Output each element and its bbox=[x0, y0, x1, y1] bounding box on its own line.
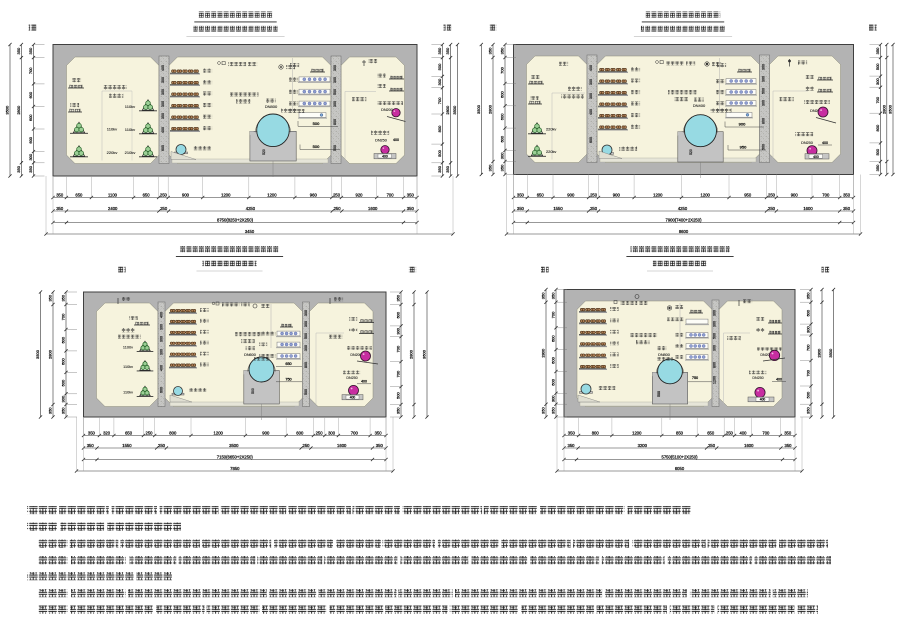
svg-text:350: 350 bbox=[488, 47, 493, 54]
svg-text:900: 900 bbox=[262, 430, 270, 435]
svg-text:600: 600 bbox=[806, 309, 811, 316]
svg-text:400: 400 bbox=[822, 141, 828, 145]
svg-text:350: 350 bbox=[437, 165, 442, 172]
svg-text:500: 500 bbox=[333, 89, 337, 95]
svg-text:350: 350 bbox=[517, 206, 525, 211]
svg-text:350: 350 bbox=[445, 47, 450, 54]
svg-text:350: 350 bbox=[806, 406, 811, 413]
svg-text:600: 600 bbox=[551, 335, 556, 342]
svg-text:500: 500 bbox=[762, 88, 766, 94]
svg-text:850: 850 bbox=[676, 430, 684, 435]
svg-text:7900(7400+2X250): 7900(7400+2X250) bbox=[666, 217, 703, 222]
svg-text:350: 350 bbox=[843, 206, 851, 211]
svg-text:700: 700 bbox=[762, 430, 770, 435]
svg-text:350: 350 bbox=[843, 192, 851, 197]
svg-text:350: 350 bbox=[28, 165, 33, 172]
svg-text:700: 700 bbox=[437, 97, 442, 104]
svg-text:700: 700 bbox=[500, 66, 505, 73]
svg-text:500: 500 bbox=[875, 148, 880, 155]
svg-text:300: 300 bbox=[333, 65, 337, 71]
svg-text:650: 650 bbox=[285, 362, 291, 366]
svg-text:800: 800 bbox=[592, 430, 600, 435]
svg-text:1550: 1550 bbox=[553, 206, 563, 211]
svg-text:400: 400 bbox=[160, 365, 164, 371]
svg-text:DN250: DN250 bbox=[346, 376, 357, 380]
svg-text:350: 350 bbox=[488, 164, 493, 171]
svg-text:900: 900 bbox=[182, 192, 190, 197]
svg-text:400: 400 bbox=[776, 378, 782, 382]
svg-text:350: 350 bbox=[551, 292, 556, 299]
svg-text:500: 500 bbox=[251, 388, 255, 394]
svg-text:500: 500 bbox=[304, 389, 308, 395]
svg-text:350: 350 bbox=[785, 443, 793, 448]
svg-text:210kv: 210kv bbox=[125, 150, 136, 155]
svg-text:700: 700 bbox=[28, 67, 33, 74]
svg-text:400: 400 bbox=[160, 312, 164, 318]
svg-text:350: 350 bbox=[48, 407, 53, 414]
svg-text:300: 300 bbox=[551, 395, 556, 402]
svg-text:3500: 3500 bbox=[5, 105, 10, 115]
svg-text:1200: 1200 bbox=[632, 430, 642, 435]
svg-text:300: 300 bbox=[304, 321, 308, 327]
svg-text:1600: 1600 bbox=[337, 443, 347, 448]
svg-text:300: 300 bbox=[713, 345, 717, 351]
svg-text:300: 300 bbox=[28, 153, 33, 160]
svg-text:600: 600 bbox=[28, 136, 33, 143]
svg-text:350: 350 bbox=[500, 164, 505, 171]
svg-text:2800: 2800 bbox=[48, 349, 53, 359]
svg-text:1600: 1600 bbox=[744, 443, 754, 448]
svg-text:250: 250 bbox=[303, 443, 311, 448]
svg-text:DN200: DN200 bbox=[381, 108, 393, 112]
svg-text:500: 500 bbox=[313, 144, 320, 149]
svg-text:920: 920 bbox=[356, 192, 364, 197]
svg-text:250: 250 bbox=[590, 206, 598, 211]
svg-text:400: 400 bbox=[589, 109, 593, 115]
svg-text:500: 500 bbox=[806, 391, 811, 398]
svg-text:2800: 2800 bbox=[817, 348, 822, 358]
svg-text:700: 700 bbox=[806, 344, 811, 351]
svg-text:800: 800 bbox=[875, 124, 880, 131]
svg-text:350: 350 bbox=[61, 294, 66, 301]
svg-text:650: 650 bbox=[707, 430, 715, 435]
svg-text:600: 600 bbox=[160, 387, 164, 393]
svg-text:400: 400 bbox=[350, 395, 356, 399]
svg-text:110kv: 110kv bbox=[125, 127, 135, 132]
svg-text:250: 250 bbox=[768, 192, 776, 197]
svg-text:350: 350 bbox=[437, 47, 442, 54]
svg-text:900: 900 bbox=[613, 192, 621, 197]
svg-text:4250: 4250 bbox=[246, 206, 256, 211]
svg-text:350: 350 bbox=[806, 292, 811, 299]
svg-text:300: 300 bbox=[500, 152, 505, 159]
svg-text:7150(6650+2X250): 7150(6650+2X250) bbox=[217, 454, 254, 459]
svg-text:DN800: DN800 bbox=[265, 104, 278, 109]
svg-text:350: 350 bbox=[445, 165, 450, 172]
svg-text:700: 700 bbox=[822, 192, 830, 197]
svg-text:350: 350 bbox=[875, 47, 880, 54]
svg-text:DN200: DN200 bbox=[350, 353, 361, 357]
svg-text:3450: 3450 bbox=[245, 229, 255, 234]
svg-text:300: 300 bbox=[713, 310, 717, 316]
svg-text:110kv: 110kv bbox=[123, 391, 133, 395]
svg-text:400: 400 bbox=[361, 380, 367, 384]
svg-text:300: 300 bbox=[161, 89, 165, 95]
svg-text:500: 500 bbox=[396, 391, 401, 398]
svg-text:900: 900 bbox=[791, 192, 799, 197]
svg-text:DN250: DN250 bbox=[752, 376, 763, 380]
svg-text:300: 300 bbox=[161, 113, 165, 119]
svg-text:700: 700 bbox=[806, 369, 811, 376]
svg-text:DN250: DN250 bbox=[801, 141, 813, 145]
svg-text:250: 250 bbox=[726, 430, 734, 435]
svg-text:520: 520 bbox=[689, 149, 693, 155]
svg-text:350: 350 bbox=[16, 47, 21, 54]
svg-text:250: 250 bbox=[768, 206, 776, 211]
svg-text:8600: 8600 bbox=[679, 229, 689, 234]
svg-text:520: 520 bbox=[262, 149, 266, 155]
svg-text:4250: 4250 bbox=[678, 206, 688, 211]
svg-text:110kv: 110kv bbox=[123, 365, 133, 369]
svg-text:750: 750 bbox=[692, 376, 698, 380]
svg-text:3200: 3200 bbox=[638, 443, 648, 448]
svg-text:300: 300 bbox=[304, 345, 308, 351]
svg-text:300: 300 bbox=[304, 310, 308, 316]
svg-text:1100v: 1100v bbox=[123, 346, 133, 350]
svg-text:350: 350 bbox=[376, 443, 384, 448]
svg-text:1600: 1600 bbox=[368, 206, 378, 211]
svg-text:300: 300 bbox=[333, 77, 337, 83]
svg-text:350: 350 bbox=[48, 294, 53, 301]
svg-text:600: 600 bbox=[500, 113, 505, 120]
svg-text:250: 250 bbox=[590, 192, 598, 197]
svg-text:1200: 1200 bbox=[713, 376, 717, 384]
svg-text:350: 350 bbox=[407, 192, 415, 197]
svg-text:2800: 2800 bbox=[541, 348, 546, 358]
svg-text:350: 350 bbox=[407, 206, 415, 211]
svg-text:600: 600 bbox=[396, 311, 401, 318]
svg-text:220kv: 220kv bbox=[546, 127, 556, 132]
svg-text:350: 350 bbox=[396, 407, 401, 414]
svg-text:350: 350 bbox=[396, 294, 401, 301]
svg-text:2800: 2800 bbox=[488, 104, 493, 114]
svg-text:500: 500 bbox=[875, 63, 880, 70]
svg-text:700: 700 bbox=[387, 192, 395, 197]
svg-text:960: 960 bbox=[310, 192, 318, 197]
svg-text:950: 950 bbox=[744, 192, 752, 197]
svg-text:350: 350 bbox=[875, 164, 880, 171]
svg-text:600: 600 bbox=[61, 336, 66, 343]
svg-text:400: 400 bbox=[760, 398, 766, 402]
svg-text:2800: 2800 bbox=[16, 105, 21, 115]
svg-text:3500: 3500 bbox=[888, 104, 893, 114]
svg-text:300: 300 bbox=[762, 76, 766, 82]
svg-text:500: 500 bbox=[304, 333, 308, 339]
svg-text:700: 700 bbox=[396, 370, 401, 377]
svg-text:400: 400 bbox=[740, 430, 748, 435]
svg-text:3500: 3500 bbox=[828, 348, 833, 358]
svg-text:800: 800 bbox=[304, 362, 308, 368]
svg-text:350: 350 bbox=[541, 406, 546, 413]
svg-text:700: 700 bbox=[551, 311, 556, 318]
svg-text:900: 900 bbox=[739, 122, 746, 127]
svg-text:350: 350 bbox=[568, 430, 576, 435]
svg-text:250: 250 bbox=[708, 443, 716, 448]
svg-text:900: 900 bbox=[567, 192, 575, 197]
svg-text:350: 350 bbox=[784, 430, 792, 435]
svg-text:350: 350 bbox=[551, 406, 556, 413]
svg-text:300: 300 bbox=[437, 78, 442, 85]
svg-text:8750(8250+2X250): 8750(8250+2X250) bbox=[217, 217, 254, 222]
svg-text:2800: 2800 bbox=[445, 105, 450, 115]
svg-text:400: 400 bbox=[393, 138, 399, 142]
svg-text:350: 350 bbox=[28, 47, 33, 54]
svg-text:400: 400 bbox=[813, 155, 819, 159]
svg-text:400: 400 bbox=[382, 155, 388, 159]
svg-text:650: 650 bbox=[143, 192, 151, 197]
svg-text:3500: 3500 bbox=[476, 104, 481, 114]
svg-text:1100: 1100 bbox=[108, 192, 118, 197]
svg-text:300: 300 bbox=[589, 93, 593, 99]
svg-text:800: 800 bbox=[333, 119, 337, 125]
svg-text:DN600: DN600 bbox=[244, 353, 256, 357]
svg-text:300: 300 bbox=[762, 64, 766, 70]
svg-text:6050: 6050 bbox=[675, 466, 685, 471]
svg-text:1200: 1200 bbox=[653, 192, 663, 197]
svg-text:350: 350 bbox=[88, 430, 96, 435]
svg-text:300: 300 bbox=[806, 325, 811, 332]
svg-text:500: 500 bbox=[333, 145, 337, 151]
svg-text:3600: 3600 bbox=[422, 349, 427, 359]
svg-text:300: 300 bbox=[333, 101, 337, 107]
svg-text:250: 250 bbox=[160, 206, 168, 211]
svg-text:400: 400 bbox=[161, 65, 165, 71]
svg-text:750: 750 bbox=[285, 377, 291, 381]
svg-text:2800: 2800 bbox=[409, 349, 414, 359]
svg-text:220kv: 220kv bbox=[107, 150, 118, 155]
svg-text:300: 300 bbox=[328, 430, 336, 435]
svg-text:500: 500 bbox=[437, 149, 442, 156]
svg-text:950: 950 bbox=[740, 145, 747, 150]
svg-text:250: 250 bbox=[158, 443, 166, 448]
svg-text:500: 500 bbox=[713, 333, 717, 339]
svg-text:800: 800 bbox=[437, 125, 442, 132]
svg-text:250: 250 bbox=[334, 206, 342, 211]
svg-text:700: 700 bbox=[396, 345, 401, 352]
svg-text:600: 600 bbox=[551, 356, 556, 363]
svg-text:300: 300 bbox=[160, 349, 164, 355]
svg-text:7850: 7850 bbox=[230, 466, 240, 471]
svg-text:300: 300 bbox=[875, 77, 880, 84]
svg-text:800: 800 bbox=[169, 430, 177, 435]
svg-text:110kv: 110kv bbox=[107, 127, 117, 132]
svg-text:600: 600 bbox=[296, 430, 304, 435]
svg-text:1200: 1200 bbox=[701, 192, 711, 197]
svg-text:500: 500 bbox=[437, 63, 442, 70]
svg-text:300: 300 bbox=[396, 327, 401, 334]
svg-text:600: 600 bbox=[28, 91, 33, 98]
svg-text:300: 300 bbox=[589, 79, 593, 85]
svg-text:500: 500 bbox=[313, 121, 320, 126]
svg-text:2400: 2400 bbox=[108, 206, 118, 211]
svg-text:1200: 1200 bbox=[267, 192, 277, 197]
svg-text:300: 300 bbox=[160, 336, 164, 342]
svg-text:1600: 1600 bbox=[803, 206, 813, 211]
svg-text:1200: 1200 bbox=[214, 430, 224, 435]
svg-text:110kv: 110kv bbox=[125, 104, 135, 109]
svg-text:DN800: DN800 bbox=[658, 353, 670, 357]
svg-text:5750(5100+2X250): 5750(5100+2X250) bbox=[662, 454, 699, 459]
svg-text:600: 600 bbox=[500, 135, 505, 142]
svg-text:3500: 3500 bbox=[229, 443, 239, 448]
svg-text:DN400: DN400 bbox=[693, 103, 706, 108]
svg-text:300: 300 bbox=[762, 100, 766, 106]
svg-text:700: 700 bbox=[61, 313, 66, 320]
svg-text:600: 600 bbox=[551, 378, 556, 385]
svg-text:1550: 1550 bbox=[122, 443, 132, 448]
svg-text:600: 600 bbox=[589, 137, 593, 143]
svg-text:3500: 3500 bbox=[452, 105, 457, 115]
svg-text:350: 350 bbox=[56, 192, 64, 197]
svg-text:350: 350 bbox=[87, 443, 95, 448]
svg-text:350: 350 bbox=[517, 192, 525, 197]
svg-text:300: 300 bbox=[61, 395, 66, 402]
svg-text:300: 300 bbox=[161, 77, 165, 83]
svg-text:650: 650 bbox=[537, 192, 545, 197]
svg-text:400: 400 bbox=[161, 127, 165, 133]
svg-text:300: 300 bbox=[160, 324, 164, 330]
svg-text:250: 250 bbox=[160, 192, 168, 197]
svg-text:350: 350 bbox=[500, 47, 505, 54]
svg-text:500: 500 bbox=[762, 144, 766, 150]
svg-text:350: 350 bbox=[61, 407, 66, 414]
svg-text:350: 350 bbox=[375, 430, 383, 435]
svg-text:300: 300 bbox=[161, 101, 165, 107]
svg-text:250: 250 bbox=[316, 430, 324, 435]
svg-text:300: 300 bbox=[713, 321, 717, 327]
svg-text:650: 650 bbox=[125, 430, 133, 435]
svg-text:250: 250 bbox=[333, 192, 341, 197]
svg-text:700: 700 bbox=[875, 96, 880, 103]
svg-text:350: 350 bbox=[541, 292, 546, 299]
svg-text:800: 800 bbox=[762, 118, 766, 124]
svg-text:600: 600 bbox=[61, 379, 66, 386]
svg-text:600: 600 bbox=[61, 357, 66, 364]
svg-text:350: 350 bbox=[16, 165, 21, 172]
svg-text:400: 400 bbox=[589, 65, 593, 71]
svg-text:350: 350 bbox=[56, 206, 64, 211]
svg-text:600: 600 bbox=[161, 145, 165, 151]
svg-text:3500: 3500 bbox=[35, 349, 40, 359]
svg-text:320: 320 bbox=[103, 430, 111, 435]
svg-text:DN250: DN250 bbox=[375, 139, 387, 143]
svg-text:250: 250 bbox=[146, 430, 154, 435]
svg-text:500: 500 bbox=[657, 391, 661, 397]
svg-text:350: 350 bbox=[568, 443, 576, 448]
svg-text:2800: 2800 bbox=[881, 104, 886, 114]
svg-text:650: 650 bbox=[75, 192, 83, 197]
svg-text:220kv: 220kv bbox=[546, 149, 556, 154]
svg-text:800: 800 bbox=[713, 362, 717, 368]
svg-text:600: 600 bbox=[500, 90, 505, 97]
svg-text:1200: 1200 bbox=[221, 192, 231, 197]
svg-text:700: 700 bbox=[351, 430, 359, 435]
svg-text:600: 600 bbox=[28, 114, 33, 121]
